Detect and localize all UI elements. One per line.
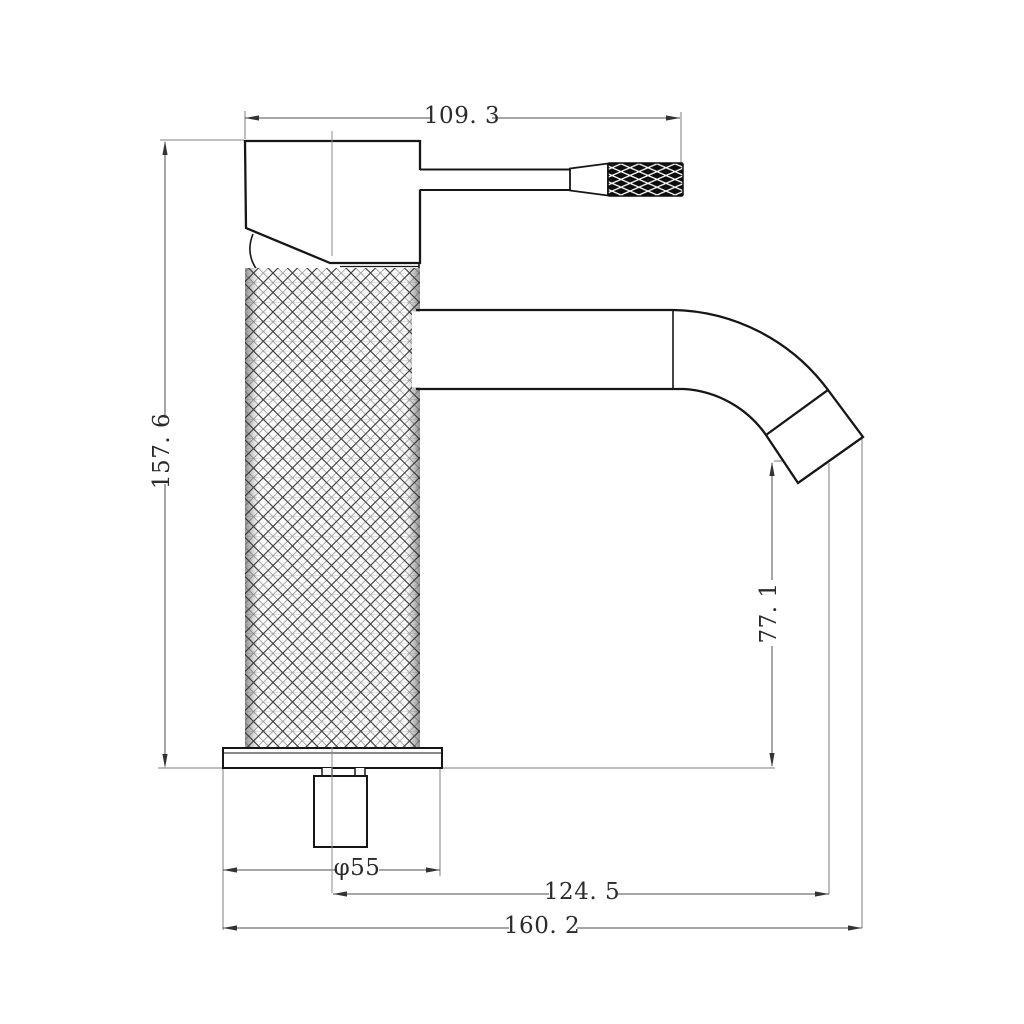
- shank-block: [314, 776, 367, 847]
- arrow-down-icon: [162, 754, 167, 768]
- arrow-right-icon: [666, 115, 680, 120]
- dim-label-handle-width: 109. 3: [424, 103, 500, 129]
- arrow-left-icon: [245, 115, 259, 120]
- arrow-up-icon: [162, 141, 167, 155]
- knurl-pattern: [245, 268, 420, 748]
- lever-taper: [570, 164, 608, 196]
- arrow-right-icon: [426, 867, 440, 872]
- spout-tube-fill: [412, 312, 673, 388]
- spout-inner-curve: [416, 389, 766, 435]
- aerator-tip: [766, 390, 863, 483]
- faucet-body: [223, 141, 863, 847]
- dimension-labels: 109. 3 157. 6 77. 1 φ55 124. 5 160. 2: [149, 103, 782, 939]
- knurled-body: [245, 268, 420, 748]
- faucet-technical-drawing: 109. 3 157. 6 77. 1 φ55 124. 5 160. 2: [0, 0, 1024, 1024]
- lever-grip-knurled: [608, 163, 683, 196]
- arrow-left-icon: [333, 891, 347, 896]
- arrow-up-icon: [769, 462, 774, 476]
- dim-label-base-diameter: φ55: [334, 855, 381, 881]
- spout: [412, 310, 863, 483]
- arrow-left-icon: [223, 925, 237, 930]
- arrow-right-icon: [815, 891, 829, 896]
- dim-label-overall-height: 157. 6: [149, 413, 175, 489]
- lever-handle: [418, 163, 683, 196]
- shank-neck-tabs: [322, 768, 365, 776]
- dim-label-spout-reach: 124. 5: [544, 879, 620, 905]
- arrow-down-icon: [769, 753, 774, 767]
- dim-label-overall-reach: 160. 2: [504, 913, 580, 939]
- dim-label-outlet-height: 77. 1: [756, 582, 782, 643]
- inlet-shank: [314, 768, 367, 847]
- cylinder-left-shade: [245, 268, 258, 748]
- drawing-canvas: 109. 3 157. 6 77. 1 φ55 124. 5 160. 2: [0, 0, 1024, 1024]
- arrow-left-icon: [223, 867, 237, 872]
- lever-rod-fill: [418, 170, 570, 190]
- arrow-right-icon: [848, 925, 862, 930]
